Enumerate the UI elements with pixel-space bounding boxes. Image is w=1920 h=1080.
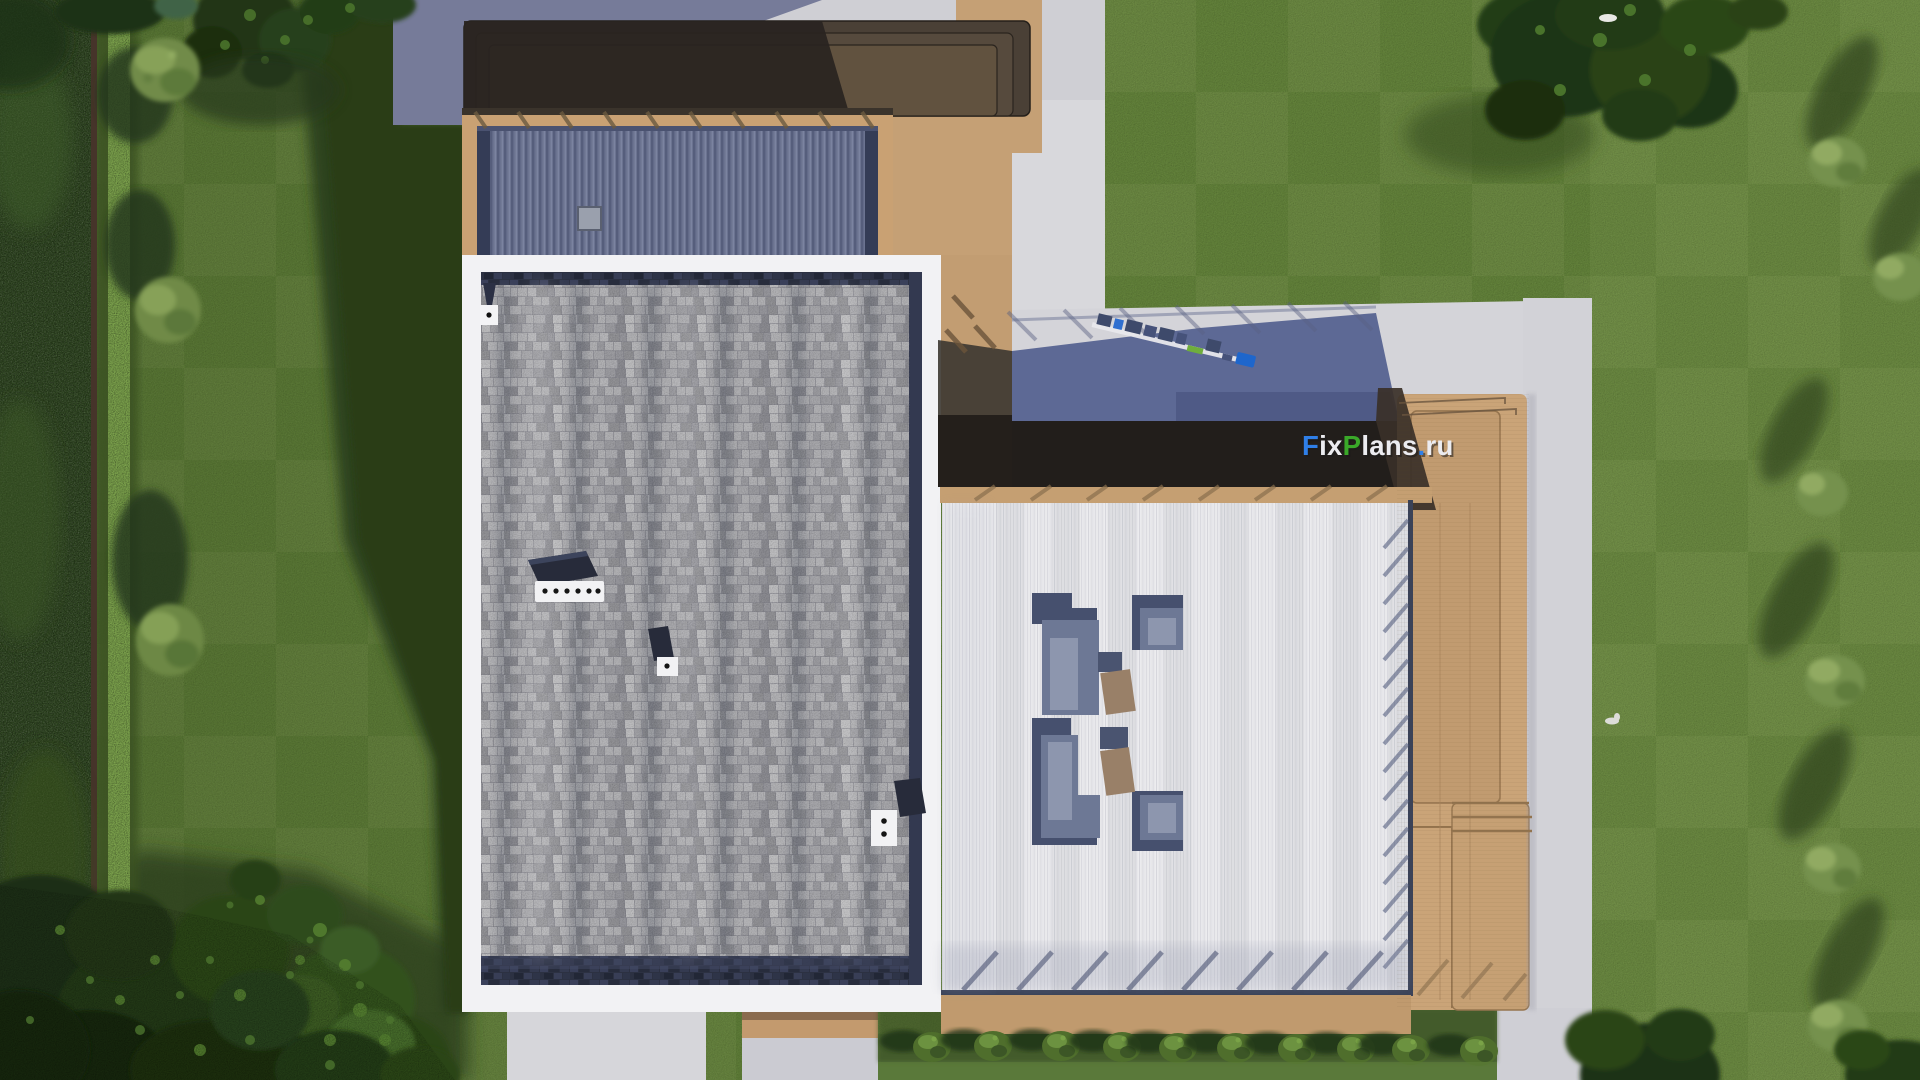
svg-text:FixPlans.ru: FixPlans.ru <box>1302 430 1454 461</box>
